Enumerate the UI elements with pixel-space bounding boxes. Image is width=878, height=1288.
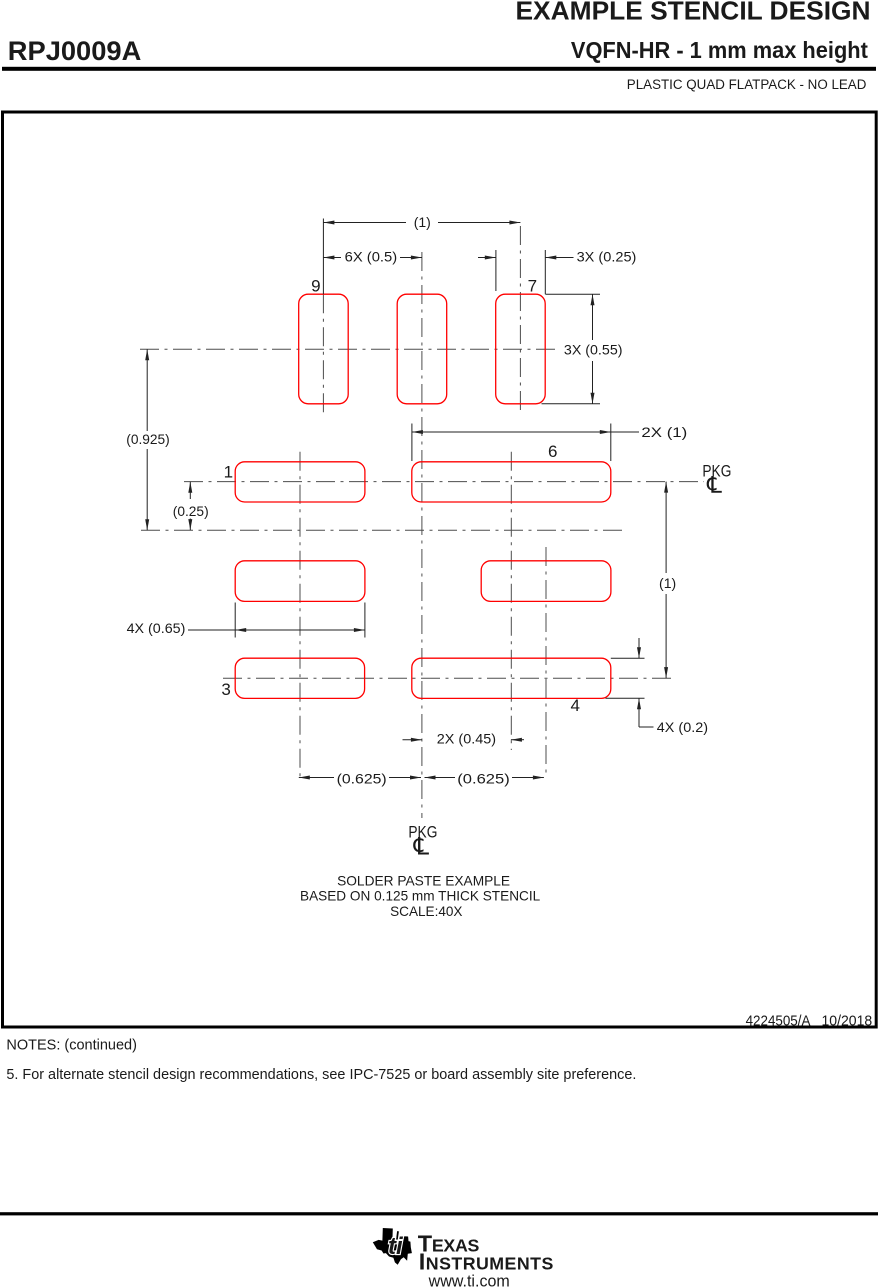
svg-text:6: 6 <box>548 442 557 461</box>
svg-text:2X (0.45): 2X (0.45) <box>437 731 496 747</box>
svg-text:℄: ℄ <box>706 472 722 498</box>
svg-text:10/2018: 10/2018 <box>822 1012 873 1029</box>
svg-text:4: 4 <box>570 696 579 715</box>
svg-text:(1): (1) <box>659 575 676 591</box>
svg-text:PLASTIC QUAD FLATPACK - NO LEA: PLASTIC QUAD FLATPACK - NO LEAD <box>627 77 867 93</box>
svg-text:EXAMPLE STENCIL DESIGN: EXAMPLE STENCIL DESIGN <box>516 0 871 25</box>
svg-text:3: 3 <box>221 680 230 699</box>
svg-text:ti: ti <box>388 1233 404 1260</box>
svg-text:4X (0.65): 4X (0.65) <box>127 620 186 636</box>
svg-text:www.ti.com: www.ti.com <box>428 1273 510 1288</box>
svg-text:(0.925): (0.925) <box>126 431 170 447</box>
svg-text:NOTES: (continued): NOTES: (continued) <box>6 1038 137 1054</box>
svg-text:SOLDER PASTE EXAMPLE: SOLDER PASTE EXAMPLE <box>337 872 510 888</box>
svg-text:4224505/A: 4224505/A <box>746 1012 811 1029</box>
svg-text:7: 7 <box>528 276 537 295</box>
svg-text:2X (1): 2X (1) <box>641 424 687 440</box>
svg-text:5. For alternate stencil desig: 5. For alternate stencil design recommen… <box>6 1067 636 1083</box>
svg-text:RPJ0009A: RPJ0009A <box>8 36 142 66</box>
svg-text:℄: ℄ <box>413 833 430 860</box>
svg-text:(0.25): (0.25) <box>173 503 209 519</box>
svg-text:(0.625): (0.625) <box>457 771 509 787</box>
svg-text:3X (0.25): 3X (0.25) <box>577 249 637 265</box>
svg-text:(0.625): (0.625) <box>337 771 387 787</box>
svg-text:1: 1 <box>224 463 233 482</box>
svg-text:4X (0.2): 4X (0.2) <box>657 719 708 735</box>
svg-text:(1): (1) <box>414 214 431 230</box>
svg-text:9: 9 <box>311 276 320 295</box>
svg-text:BASED ON 0.125 mm THICK STENCI: BASED ON 0.125 mm THICK STENCIL <box>300 888 540 904</box>
svg-text:VQFN-HR - 1 mm max height: VQFN-HR - 1 mm max height <box>571 37 868 63</box>
svg-text:6X (0.5): 6X (0.5) <box>345 249 398 265</box>
svg-text:3X (0.55): 3X (0.55) <box>564 342 623 358</box>
svg-text:SCALE:40X: SCALE:40X <box>390 903 463 919</box>
